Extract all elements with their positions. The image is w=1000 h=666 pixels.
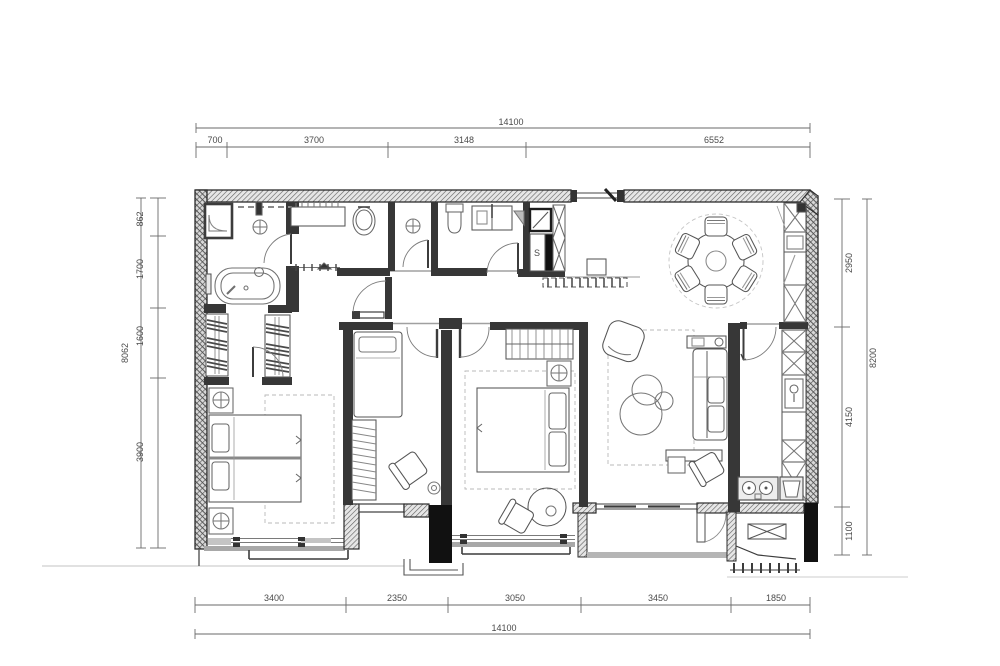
svg-text:14100: 14100 [491, 623, 516, 633]
svg-text:1100: 1100 [844, 521, 854, 540]
svg-text:1600: 1600 [135, 326, 145, 346]
svg-text:8062: 8062 [120, 343, 130, 363]
svg-text:700: 700 [207, 135, 222, 145]
svg-text:3900: 3900 [135, 442, 145, 462]
svg-text:3400: 3400 [264, 593, 284, 603]
svg-text:3050: 3050 [505, 593, 525, 603]
svg-text:3700: 3700 [304, 135, 324, 145]
svg-text:S: S [534, 248, 540, 258]
svg-text:14100: 14100 [498, 117, 523, 127]
svg-text:1700: 1700 [135, 259, 145, 279]
svg-text:1850: 1850 [766, 593, 786, 603]
svg-text:862: 862 [135, 211, 145, 226]
svg-text:3450: 3450 [648, 593, 668, 603]
svg-text:6552: 6552 [704, 135, 724, 145]
svg-text:2350: 2350 [387, 593, 407, 603]
svg-text:3148: 3148 [454, 135, 474, 145]
svg-text:8200: 8200 [868, 348, 878, 368]
svg-text:4150: 4150 [844, 407, 854, 427]
svg-text:2950: 2950 [844, 253, 854, 273]
